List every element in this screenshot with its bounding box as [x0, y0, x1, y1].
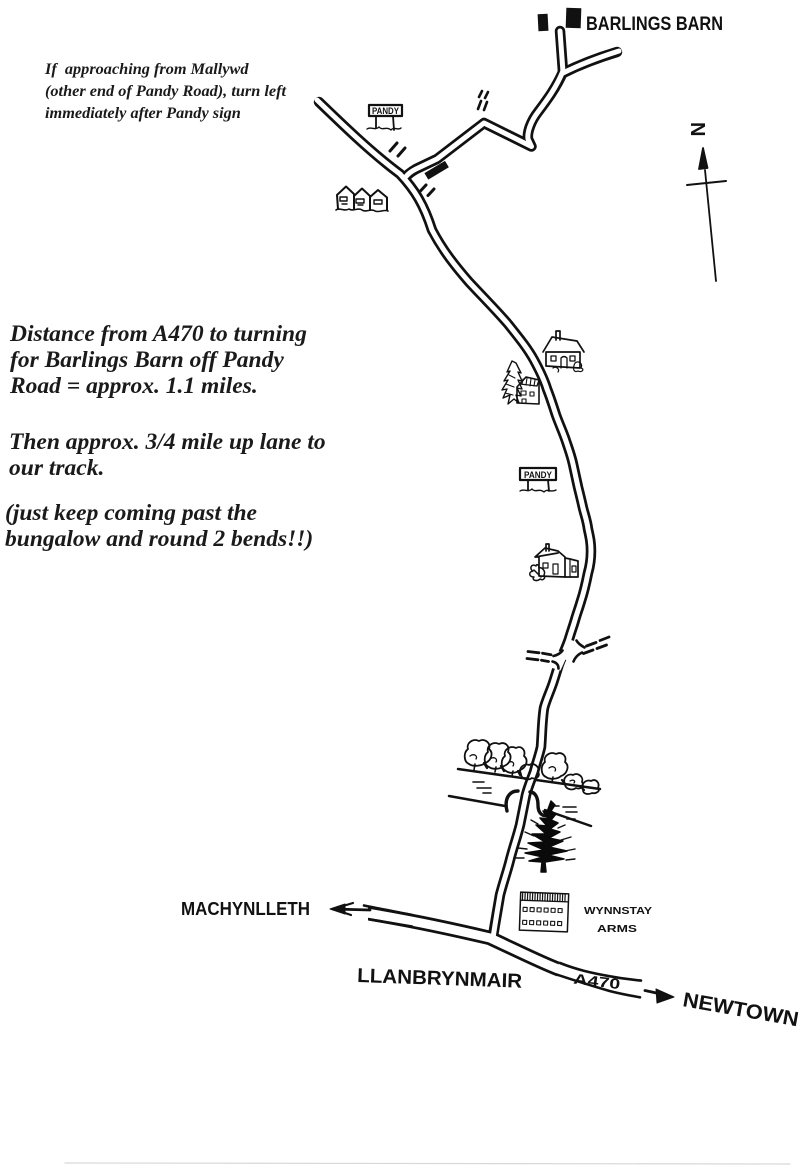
svg-text:BARLINGS BARN: BARLINGS BARN	[586, 14, 723, 35]
svg-text:LLANBRYNMAIR: LLANBRYNMAIR	[357, 965, 523, 993]
svg-text:ARMS: ARMS	[597, 923, 637, 935]
svg-text:PANDY: PANDY	[372, 106, 399, 116]
svg-text:WYNNSTAY: WYNNSTAY	[584, 905, 652, 917]
svg-text:NEWTOWN: NEWTOWN	[681, 988, 800, 1031]
svg-text:N: N	[686, 122, 708, 136]
svg-text:MACHYNLLETH: MACHYNLLETH	[181, 898, 310, 919]
svg-text:PANDY: PANDY	[524, 470, 552, 480]
